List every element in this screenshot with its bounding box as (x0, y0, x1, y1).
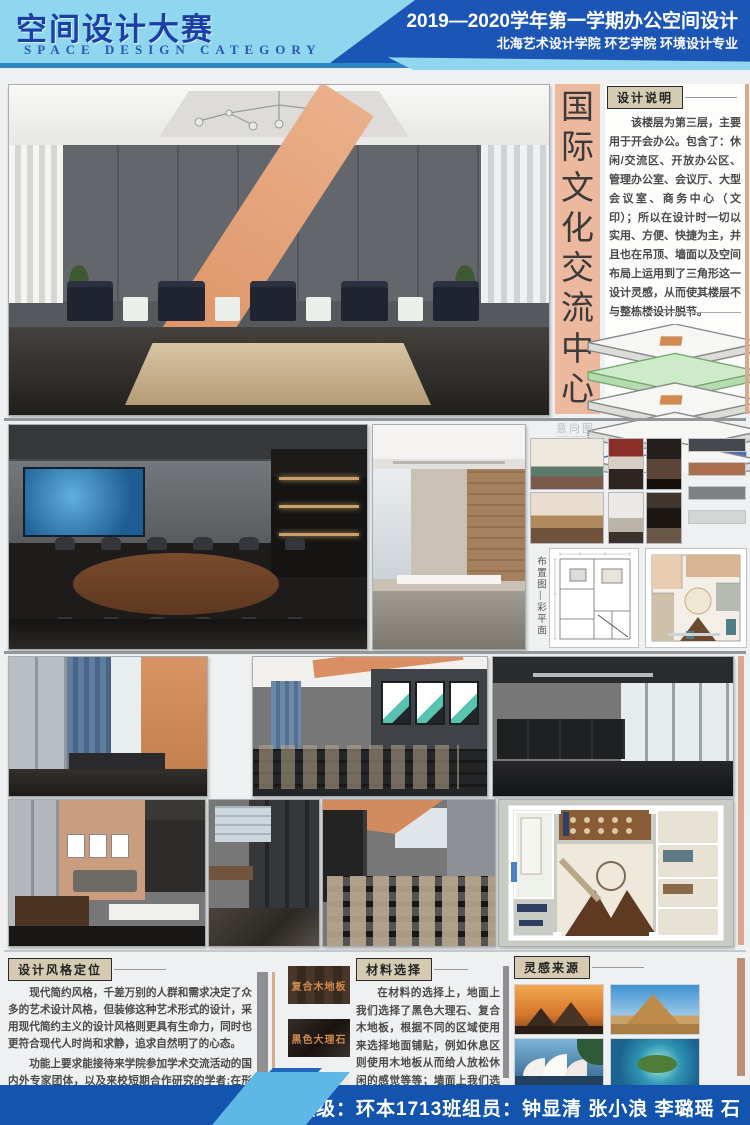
header-accent-strip (0, 63, 420, 68)
render-workstation-room (8, 656, 208, 797)
lounge-sofa-row (67, 281, 479, 329)
palette-swatch-gray (688, 486, 746, 500)
mood-photo-restaurant (608, 438, 644, 490)
school-name: 北海艺术设计学院 环艺学院 环境设计专业 (497, 33, 738, 52)
salmon-edge-bar (745, 84, 749, 414)
floor-plan-line-drawing (549, 548, 639, 648)
wall-art (381, 681, 411, 725)
material-swatch-wood: 复合木地板 (288, 966, 350, 1004)
inspiration-opera-house (514, 1038, 604, 1089)
design-note-panel: 设计说明 该楼层为第三层，主要用于开会办公。包含了：休闲/交流区、开放办公区、管… (605, 84, 745, 414)
section-divider (4, 418, 746, 421)
materials-label: 材料选择 (356, 958, 432, 981)
header-diagonal (330, 0, 415, 63)
mood-photo-lobby (646, 492, 682, 544)
wall-art (449, 681, 479, 725)
palette-swatch-lightgray (688, 510, 746, 524)
oval-conference-table (73, 553, 279, 615)
inspiration-great-pyramid (610, 984, 700, 1035)
render-open-office (492, 656, 734, 797)
intent-images-label: 意向图 (556, 420, 595, 437)
material-swatch-marble: 黑色大理石 (288, 1019, 350, 1057)
wood-slat-wall (467, 469, 525, 581)
mood-photo-lounge (530, 438, 604, 490)
poster-root: 空间设计大赛 SPACE DESIGN CATEGORY 2019—2020学年… (0, 0, 750, 1125)
palette-swatch-charcoal (688, 438, 746, 452)
display-cabinet (271, 449, 367, 577)
reception-window (373, 469, 411, 579)
design-note-body: 该楼层为第三层，主要用于开会办公。包含了：休闲/交流区、开放办公区、管理办公室、… (609, 114, 741, 322)
inspiration-panel: 灵感来源 (514, 956, 734, 979)
section-divider (4, 950, 746, 952)
team-members: 组员：钟显清 张小浪 李璐瑶 石书 (462, 1094, 750, 1125)
color-palette (688, 438, 746, 534)
mood-photo-banquet (530, 492, 604, 544)
render-seminar-steps (252, 656, 488, 797)
design-note-label: 设计说明 (607, 86, 683, 109)
divider-bar (737, 958, 745, 1076)
label-underline (685, 97, 737, 98)
lounge-curtain-right (481, 145, 549, 303)
note-divider (633, 312, 741, 313)
wall-frame (89, 834, 107, 858)
lounge-curtain-left (9, 145, 63, 303)
section-divider (4, 651, 746, 654)
divider-bar (503, 966, 509, 1078)
tatami-platform (327, 876, 495, 946)
style-paragraph: 现代简约风格，千差万别的人群和需求决定了众多的艺术设计风格，但装修这种艺术形式的… (8, 985, 252, 1054)
long-table (397, 575, 501, 584)
lounge-rug (125, 343, 431, 405)
conference-floor (9, 619, 367, 649)
render-conference-room (8, 424, 368, 650)
render-reception-hall (372, 424, 526, 650)
palette-swatch-copper (688, 462, 746, 476)
projection-screen (23, 467, 145, 537)
wall-art (415, 681, 445, 725)
render-manager-office (8, 799, 206, 947)
style-label: 设计风格定位 (8, 958, 112, 981)
model-top-view-plan (498, 799, 734, 947)
linear-light (393, 461, 505, 464)
render-main-lounge (8, 84, 550, 416)
course-title: 2019—2020学年第一学期办公空间设计 (406, 6, 738, 33)
render-tatami-lounge (322, 799, 496, 947)
inspiration-island-aerial (610, 1038, 700, 1089)
linear-light (533, 673, 653, 677)
header-banner: 空间设计大赛 SPACE DESIGN CATEGORY 2019—2020学年… (0, 0, 750, 63)
salmon-edge-bar (738, 656, 744, 945)
inspiration-pyramids-sunset (514, 984, 604, 1035)
footer-bar: 班级：环本1713班 组员：钟显清 张小浪 李璐瑶 石书 (0, 1085, 750, 1125)
wall-frame (111, 834, 129, 858)
divider-bar (272, 972, 275, 1080)
mood-photo-hall (608, 492, 644, 544)
divider-bar (257, 972, 268, 1080)
plan-caption-mark (668, 633, 720, 636)
wall-frame (67, 834, 85, 858)
chair-row (55, 537, 305, 550)
render-washroom (208, 799, 320, 947)
floor-plan-labels: 布置图—彩平面 (532, 548, 547, 644)
mood-photo-bar (646, 438, 682, 490)
inspiration-label: 灵感来源 (514, 956, 590, 979)
poster-title-en: SPACE DESIGN CATEGORY (24, 42, 322, 58)
